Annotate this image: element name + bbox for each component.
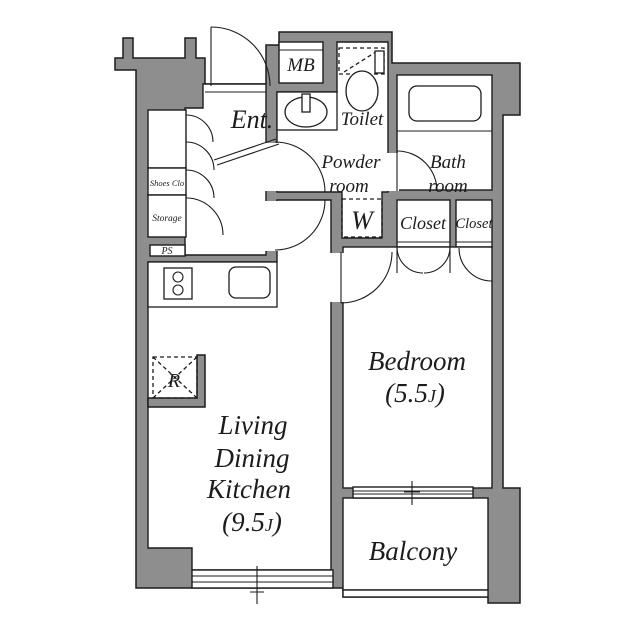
ldk-label-line1: Living — [217, 410, 287, 440]
washer-space-label: W — [351, 206, 375, 235]
kitchen-sink — [229, 267, 270, 298]
bathtub — [409, 86, 481, 121]
shoes-box-upper — [148, 110, 186, 168]
bedroom-area-label: (5.5J) — [385, 378, 445, 408]
floor-plan: Ent. MB Toilet Powderroom Bathroom W Clo… — [0, 0, 640, 640]
storage-label: Storage — [152, 214, 182, 224]
closet-small-label: Closet — [455, 216, 493, 232]
pipe-space-label: PS — [160, 246, 172, 257]
entrance-door-arc — [211, 27, 270, 86]
shoes-closet-label: Shoes Clo — [150, 178, 184, 188]
faucet-icon — [302, 94, 310, 112]
stove — [164, 268, 192, 299]
toilet-tank — [375, 51, 384, 73]
bedroom-label: Bedroom — [368, 346, 466, 376]
meter-box-label: MB — [286, 55, 315, 76]
ldk-door-opening — [263, 201, 278, 251]
powder-door-opening — [263, 143, 278, 191]
balcony-parapet — [343, 590, 488, 597]
refrigerator-label: R — [167, 370, 180, 392]
toilet-bowl — [346, 71, 378, 111]
ldk-label-line2: Dining — [213, 443, 289, 473]
bedroom-door-opening — [329, 253, 345, 302]
ldk-label-line3: Kitchen — [206, 474, 291, 504]
ldk-window — [192, 570, 333, 588]
closet-large-label: Closet — [400, 213, 447, 233]
ldk-area-label: (9.5J) — [222, 507, 282, 537]
toilet-label: Toilet — [341, 109, 384, 130]
entrance-label: Ent. — [230, 105, 274, 134]
floor-plan-canvas: Ent. MB Toilet Powderroom Bathroom W Clo… — [0, 0, 640, 640]
balcony-label: Balcony — [369, 536, 457, 566]
